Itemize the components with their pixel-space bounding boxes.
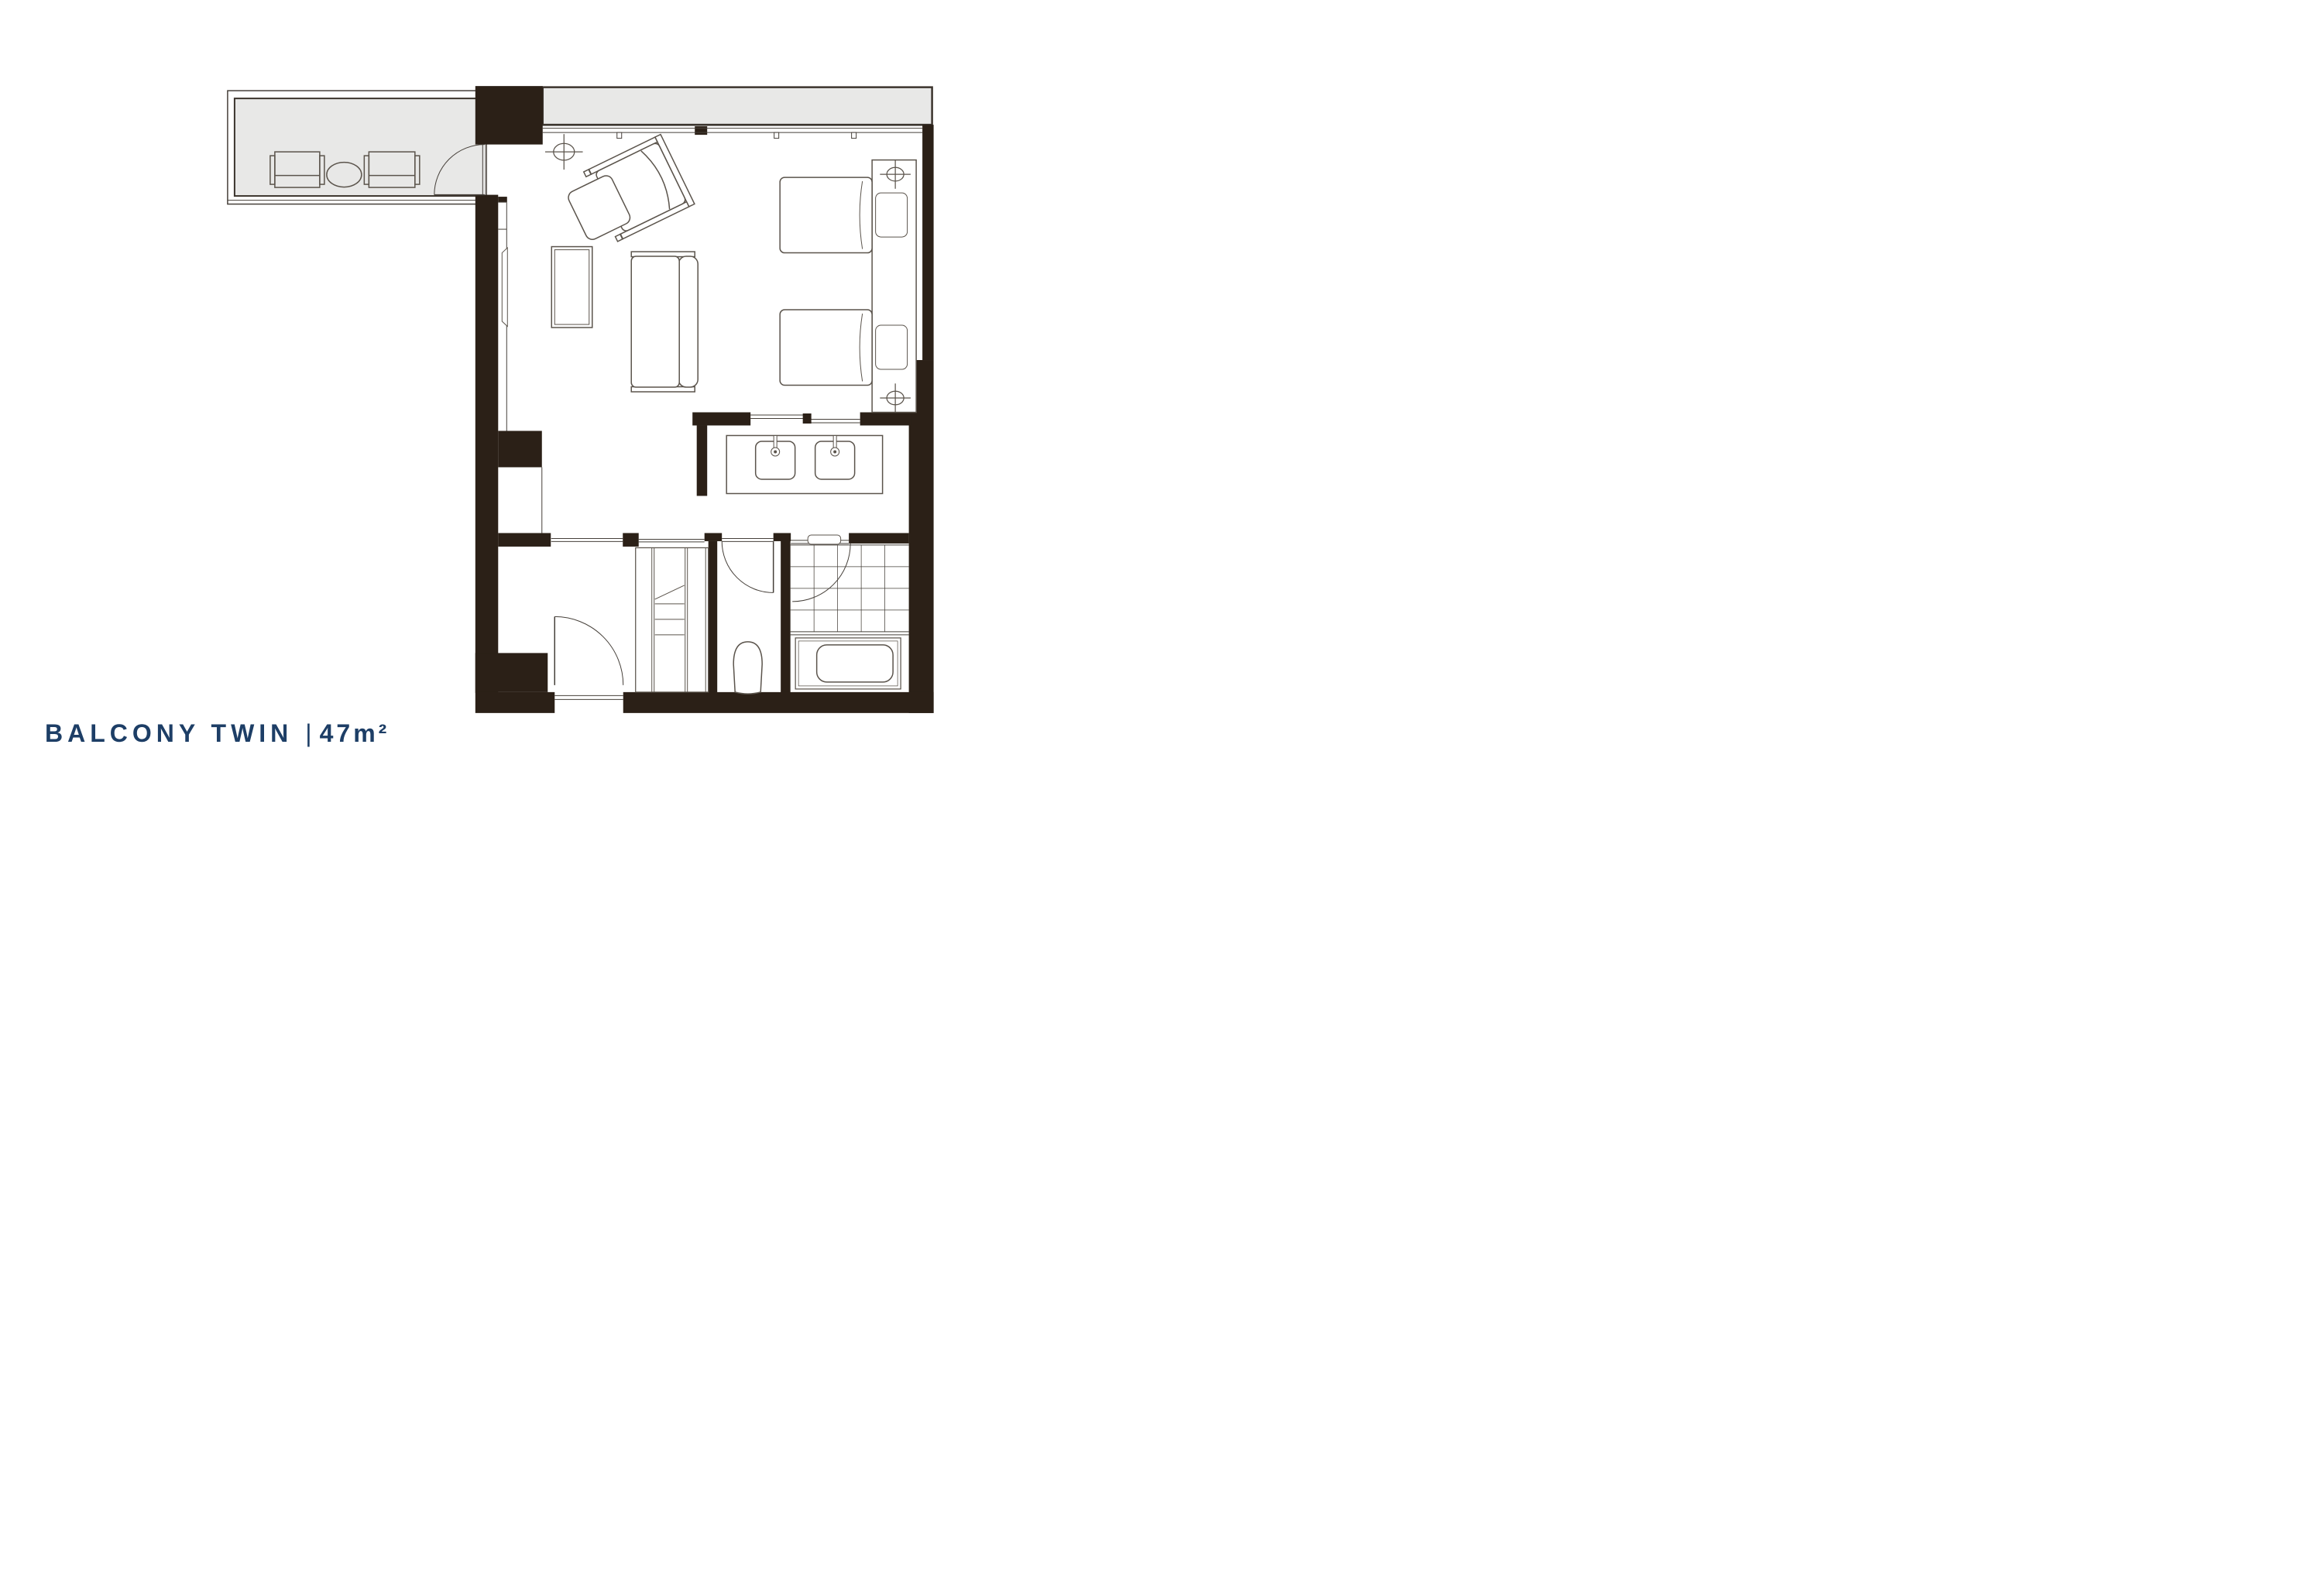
wall-mid-chunk: [498, 431, 541, 467]
faucet-1-dot: [774, 450, 777, 453]
upper-terrace-ledge: [543, 87, 932, 125]
faucet-2-stem: [833, 435, 836, 448]
room-type-label: BALCONY TWIN: [45, 719, 293, 747]
wall-right-lower: [909, 360, 934, 713]
bath-door-saddle: [808, 535, 840, 544]
wall-wc-bath-divider: [781, 533, 790, 693]
floor-plan: [0, 0, 1162, 789]
wall-tv: [502, 248, 507, 326]
wc-door-swing-arc: [722, 541, 773, 592]
pillow-1: [876, 193, 908, 237]
faucet-1-stem: [774, 435, 777, 448]
faucet-2-dot: [833, 450, 836, 453]
window-mullion-3: [852, 132, 856, 138]
entry-door-swing-arc: [554, 616, 623, 684]
wall-entry-corner: [475, 653, 548, 691]
sofa-backrest: [678, 256, 698, 387]
toilet: [733, 642, 762, 694]
ceiling-light-symbol: [545, 134, 583, 170]
wall-balcony-corner-block: [475, 86, 543, 144]
closet-outline: [636, 547, 709, 691]
page: BALCONY TWIN|47m²: [0, 0, 1162, 789]
wall-bedroom-south-left: [692, 412, 750, 425]
wall-hall-stub-west: [498, 533, 551, 546]
wall-closet-wc-divider: [709, 541, 717, 693]
floor-plan-canvas: [0, 0, 1162, 789]
plan-title: BALCONY TWIN|47m²: [45, 719, 390, 748]
balcony-door-floor: [475, 145, 486, 195]
twin-bed-2: [780, 310, 872, 385]
wall-wc-top-left: [705, 533, 722, 540]
wall-left: [475, 195, 498, 693]
window-mullion-2: [774, 132, 779, 138]
wall-bedroom-south-right: [860, 412, 911, 425]
wall-vanity-west: [697, 425, 707, 496]
wall-window-divider: [695, 126, 707, 135]
bath-door-swing-arc: [792, 544, 850, 602]
room-area-label: 47m²: [320, 719, 390, 747]
coffee-table-outer: [551, 247, 592, 328]
closet-diagonal: [655, 585, 685, 599]
wall-bottom-left: [475, 692, 554, 713]
bedroom-slide-stop: [803, 413, 812, 424]
balcony-floor: [235, 98, 479, 196]
wall-bottom-right: [623, 692, 934, 713]
wall-right-upper: [922, 125, 933, 360]
twin-bed-1: [780, 177, 872, 252]
window-mullion-1: [617, 132, 622, 138]
sofa-seat: [631, 256, 679, 387]
wall-hall-stub-east: [623, 533, 638, 546]
title-separator: |: [305, 719, 311, 747]
wall-bath-top: [849, 533, 908, 543]
pillow-2: [876, 325, 908, 369]
vanity-counter: [726, 435, 882, 493]
wall-left-notch: [498, 197, 506, 202]
